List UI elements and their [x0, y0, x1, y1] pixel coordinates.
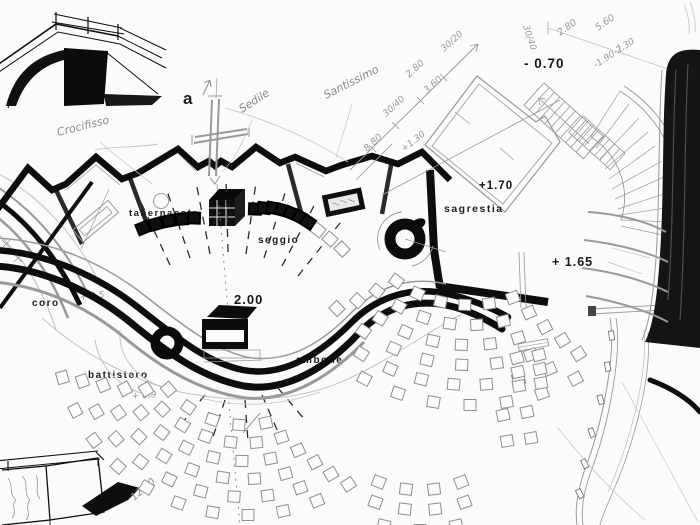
seat: [236, 455, 248, 466]
seat: [293, 481, 308, 495]
roof-canopy-sketch: [0, 12, 166, 108]
seat: [89, 404, 105, 420]
seat: [233, 419, 246, 431]
seat: [420, 353, 434, 366]
seat: [524, 432, 538, 445]
seat: [276, 505, 290, 518]
note-santissimo: Santissimo: [321, 63, 381, 102]
level-entry: - 0.70: [524, 56, 565, 71]
seat: [426, 334, 440, 347]
sanctuary-chair: [149, 217, 164, 231]
seat: [533, 362, 547, 375]
seat: [383, 361, 398, 376]
dim-280-a: 2.80: [404, 58, 427, 80]
seat: [398, 503, 411, 515]
seat: [457, 495, 472, 509]
seat: [133, 405, 149, 421]
dim-3020: 30/20: [439, 29, 465, 54]
seat: [309, 493, 324, 508]
seat: [174, 417, 190, 433]
seat: [329, 300, 345, 316]
seat: [131, 429, 147, 445]
altar-block: [202, 305, 262, 362]
seat: [278, 467, 292, 481]
seat: [68, 403, 83, 419]
seat: [290, 443, 305, 458]
seat: [511, 365, 525, 378]
seat: [261, 489, 274, 501]
seat: [216, 471, 229, 484]
seat: [510, 351, 524, 365]
dim-3040-b: 30/40: [520, 24, 538, 52]
seat: [206, 506, 220, 519]
seat: [537, 319, 553, 334]
seat: [248, 473, 261, 485]
crucifix-sketch: [192, 78, 249, 200]
note-crocifisso: Crocifisso: [56, 113, 111, 139]
seat: [470, 319, 483, 331]
label-seggio: seggio: [258, 235, 299, 246]
seat: [156, 448, 172, 464]
dim-880: 8.80: [362, 132, 385, 154]
seat: [521, 305, 536, 320]
seat: [571, 346, 587, 362]
seat: [455, 359, 467, 371]
seat: [108, 431, 124, 447]
church-plan-drawing: 12.50 a: [0, 0, 700, 525]
seat: [391, 386, 406, 400]
note-sedile: Sedile: [237, 86, 272, 115]
dim-360: 3.60: [422, 74, 445, 96]
seat: [185, 462, 200, 476]
seat: [416, 310, 431, 324]
seat: [133, 454, 149, 470]
seat: [568, 371, 584, 386]
seat: [454, 475, 469, 490]
seat: [250, 436, 263, 448]
sanctuary-chair: [162, 215, 176, 228]
seat: [307, 455, 323, 470]
seat: [340, 476, 356, 492]
seat: [224, 436, 237, 448]
seat: [180, 399, 196, 415]
seat: [512, 380, 526, 393]
seat: [117, 381, 132, 397]
seat: [483, 338, 496, 350]
seat: [447, 378, 460, 390]
seat: [154, 401, 170, 417]
seat: [386, 341, 401, 356]
seat: [110, 458, 126, 474]
seat: [482, 297, 496, 310]
seat: [464, 400, 476, 411]
seat: [161, 472, 177, 487]
seat: [399, 483, 412, 495]
seat: [532, 348, 546, 362]
seat: [242, 509, 254, 520]
seat: [205, 412, 220, 426]
dim-280-b: 2.80: [555, 17, 579, 38]
seat: [86, 432, 102, 448]
straight-stairs: [524, 83, 625, 170]
seat: [500, 396, 514, 409]
seat: [323, 466, 339, 482]
dim-range: -1.90-2.30: [592, 37, 637, 71]
seat: [534, 377, 548, 390]
seat: [371, 475, 386, 490]
seat: [480, 378, 493, 390]
seat: [500, 435, 514, 448]
seat: [377, 519, 391, 525]
side-chapel-block: [322, 187, 366, 217]
seat: [111, 405, 127, 421]
seat: [194, 484, 208, 498]
section-letter-a: a: [183, 89, 194, 108]
dim-560: 5.60: [593, 12, 617, 33]
label-sagrestia: sagrestia: [444, 203, 504, 215]
seat: [322, 231, 338, 247]
seat: [433, 295, 447, 309]
seat: [259, 416, 273, 429]
seat: [55, 370, 69, 385]
seat: [449, 519, 463, 525]
seat: [264, 452, 278, 465]
sketch-paper: 12.50 a: [0, 0, 700, 525]
seat: [228, 491, 241, 503]
seat: [427, 396, 441, 409]
sanctuary-chair: [135, 221, 150, 236]
seat: [274, 430, 289, 444]
baptistery-font: [155, 331, 179, 355]
sanctuary-chair: [188, 212, 200, 223]
seat: [496, 408, 510, 421]
seat: [414, 372, 428, 386]
seat: [160, 381, 176, 397]
seat: [455, 339, 468, 351]
seat: [490, 357, 503, 370]
dark-column-right: [582, 2, 700, 348]
seat: [349, 293, 365, 309]
seat: [427, 483, 440, 495]
seat: [179, 440, 195, 455]
label-coro: coro: [32, 298, 60, 309]
seat: [198, 429, 213, 443]
seat: [520, 405, 534, 418]
level-side: + 1.65: [552, 255, 593, 269]
seat: [154, 425, 170, 441]
sanctuary-walls: [0, 147, 548, 302]
seat: [555, 332, 571, 348]
dim-3040-a: 30/40: [381, 94, 407, 119]
seat: [171, 496, 186, 511]
seat: [334, 241, 350, 257]
seat: [398, 324, 413, 339]
seat: [428, 503, 441, 515]
seat: [459, 299, 471, 310]
seat: [206, 451, 220, 464]
level-altar: 2.00: [234, 292, 263, 307]
sanctuary-chair: [176, 213, 189, 225]
seat: [368, 495, 383, 509]
level-sacristy: +1.70: [479, 180, 513, 192]
seat: [443, 317, 456, 330]
seat: [496, 314, 510, 327]
